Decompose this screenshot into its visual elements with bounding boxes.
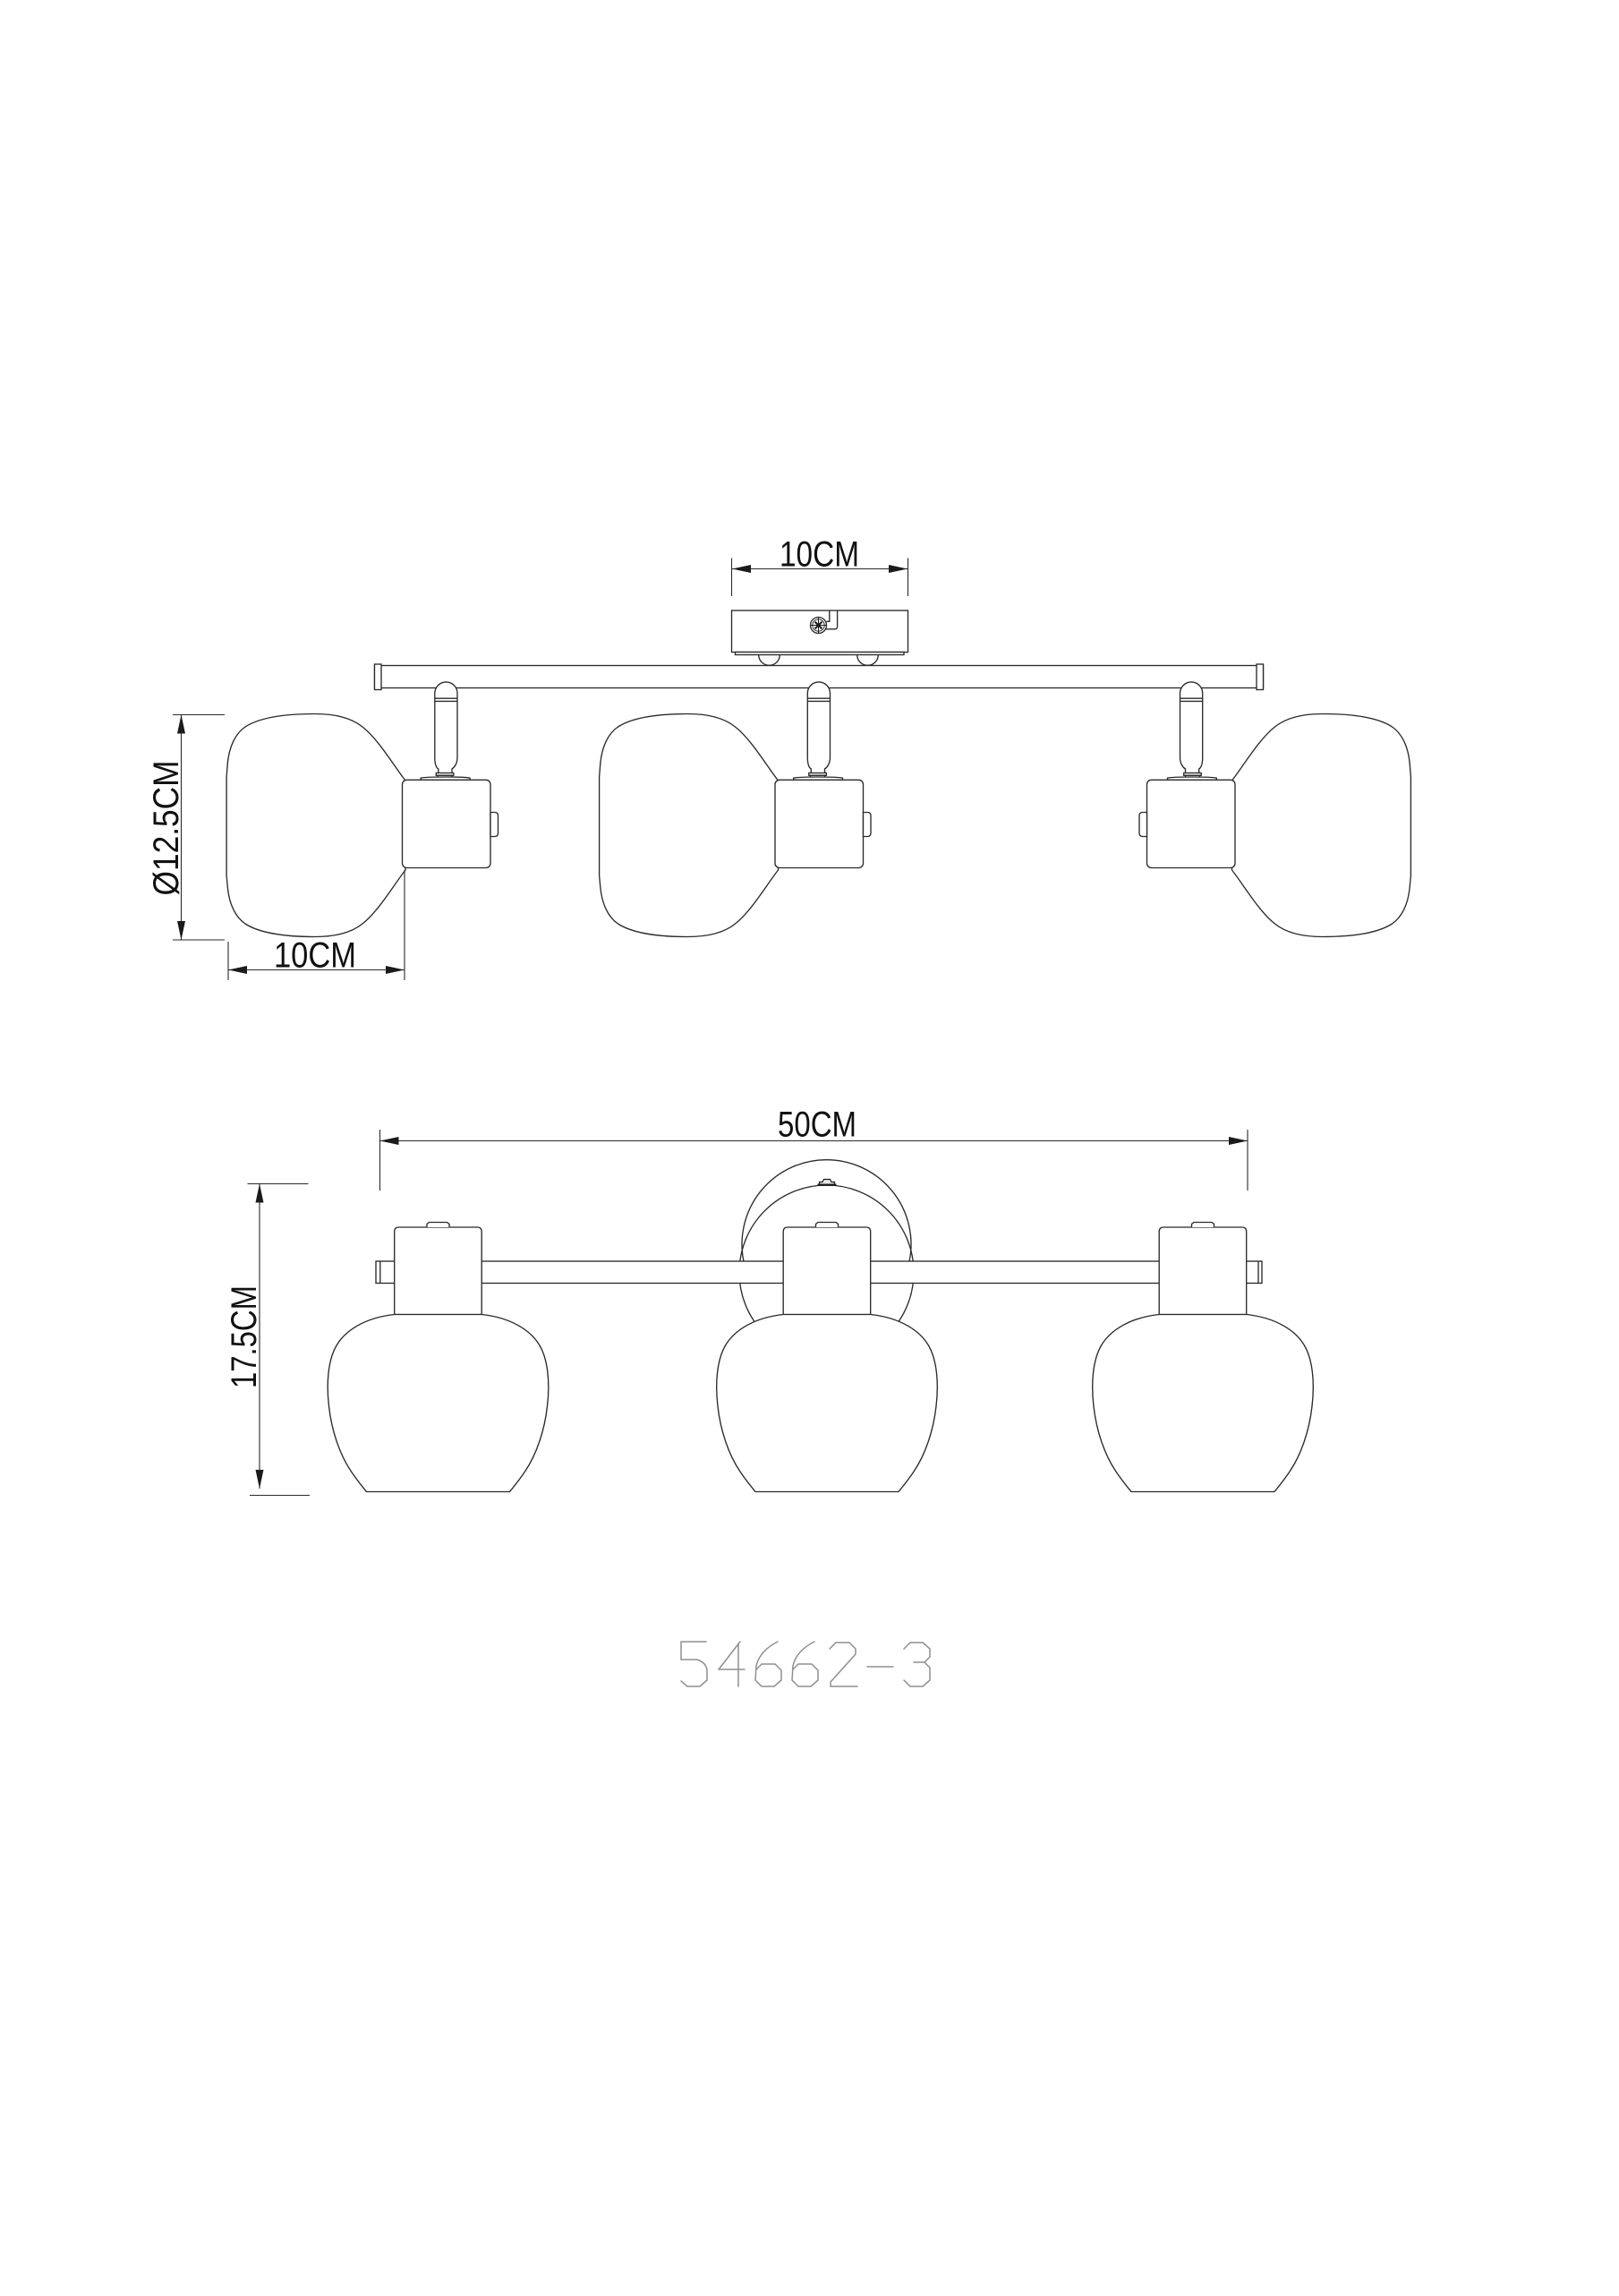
svg-text:10CM: 10CM — [274, 936, 356, 976]
svg-text:50CM: 50CM — [778, 1105, 856, 1145]
svg-text:17.5CM: 17.5CM — [225, 1285, 264, 1388]
svg-text:Ø12.5CM: Ø12.5CM — [147, 761, 186, 896]
svg-text:10CM: 10CM — [780, 535, 859, 575]
